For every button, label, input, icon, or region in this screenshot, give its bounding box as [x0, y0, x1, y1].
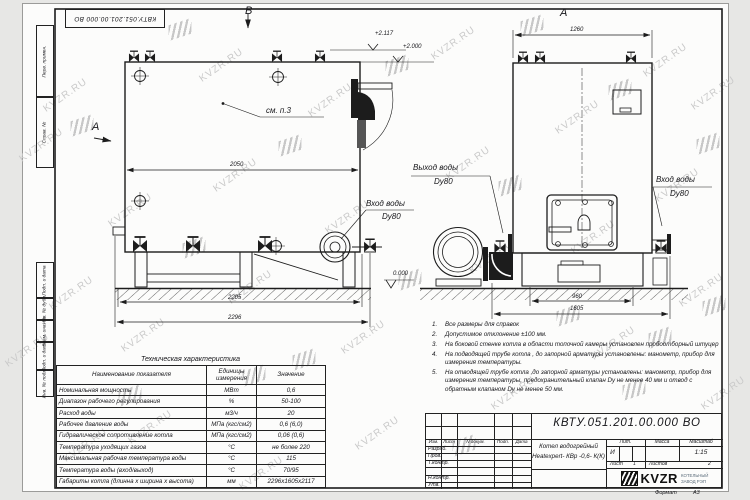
- table-row: Габариты котла (длинна х ширина х высота…: [57, 476, 326, 488]
- elevation-2117: +2.117: [375, 31, 393, 37]
- table-row: Максимальная рабочая температура воды°С1…: [57, 453, 326, 464]
- note-item: 3.На боковой стенке котла в области топо…: [432, 341, 724, 349]
- table-row: Расход водым3/ч20: [57, 407, 326, 418]
- left-inlet-label: Вход воды: [366, 200, 405, 208]
- tech-col-name: Наименование показателя: [57, 366, 207, 385]
- elevation-0000: 0.000: [393, 271, 408, 277]
- side-cell-perv-primen: Перв. примен.: [36, 25, 54, 97]
- table-row: Гидравлическое сопротивление котлаМПа (к…: [57, 430, 326, 441]
- row-tkontr: Т.контр.: [428, 461, 449, 466]
- section-a-label: А: [92, 122, 99, 133]
- row-razrab: Разраб.: [428, 447, 447, 452]
- format-value: А3: [693, 491, 700, 497]
- col-podp: Подп.: [494, 440, 512, 445]
- note-item: 1.Все размеры для справок: [432, 321, 724, 329]
- right-outlet-label: Выход воды: [413, 164, 458, 172]
- table-row: Диапазон рабочего регулирования%50-100: [57, 396, 326, 407]
- ground-hatching: [115, 289, 688, 301]
- note-item: 2.Допустимое отклонение ±100 мм.: [432, 331, 724, 339]
- kvzr-logo-icon: [621, 471, 638, 486]
- kvzr-logo-text: KVZR: [641, 471, 678, 486]
- side-cell-vzam-inv: Взам. инв. №: [36, 320, 54, 342]
- top-stamp-number: КВТУ.051.201.00.000 ВО: [74, 15, 156, 22]
- table-row: Температура уходящих газов°Сне более 220: [57, 442, 326, 453]
- dim-2296: 2296: [228, 315, 241, 321]
- side-cell-podp-data-1: Подп. и дата: [36, 262, 54, 298]
- product-name-1: Котел водогрейный: [531, 444, 606, 450]
- tech-col-units: Единицы измерения: [207, 366, 257, 385]
- row-prov: Пров.: [428, 454, 442, 459]
- product-name-2: Heatexpert- КВр -0,6- К(К): [526, 454, 611, 460]
- sheets-label: Листов: [649, 462, 667, 467]
- table-row: Номинальная мощностьМВт0,6: [57, 385, 326, 396]
- dim-2205: 2205: [228, 295, 241, 301]
- view-b-label: В: [245, 6, 252, 17]
- left-inlet-dn: Dy80: [382, 213, 401, 221]
- sheets-value: 2: [708, 462, 711, 467]
- doc-number: КВТУ.051.201.00.000 ВО: [531, 418, 723, 430]
- drawing-page: KVZR.RUKVZR.RUKVZR.RUKVZR.RUKVZR.RUKVZR.…: [0, 0, 750, 500]
- notes-list: 1.Все размеры для справок 2.Допустимое о…: [432, 321, 724, 395]
- title-block: КВТУ.051.201.00.000 ВО Изм. Лист N докум…: [425, 413, 722, 488]
- elevation-2000: +2.000: [403, 44, 422, 50]
- row-utv: Утв.: [428, 483, 440, 488]
- right-inlet-label: Вход воды: [656, 176, 695, 184]
- row-nkontr: Н.контр.: [428, 476, 450, 481]
- side-cell-inv-podl: Инв. № подл.: [36, 370, 54, 397]
- note-item: 4.На подводящей трубе котла , до запорно…: [432, 351, 724, 368]
- left-view-side: [94, 14, 434, 327]
- table-row: Рабочее давление водыМПа (кгс/см2)0,6 (6…: [57, 419, 326, 430]
- scale-value: 1:15: [679, 450, 723, 457]
- note-item: 5.На отводящей трубе котла ,до запорной …: [432, 369, 724, 394]
- format-label: Формат: [655, 491, 677, 497]
- dim-1605: 1605: [570, 306, 583, 312]
- side-cell-podp-data-2: Подп. и дата: [36, 342, 54, 370]
- col-ndokum: N докум.: [457, 440, 494, 445]
- tech-col-value: Значение: [257, 366, 326, 385]
- dim-960: 960: [572, 294, 582, 300]
- lit-header: Лит.: [606, 440, 645, 445]
- side-cell-sprav-no: Справ. №: [36, 97, 54, 168]
- company-logo-row: KVZR КОТЕЛЬНЫЙ ЗАВОД РЭП: [606, 468, 723, 489]
- sheet-value: 1: [633, 462, 636, 467]
- tech-table-title: Техническая характеристика: [56, 356, 325, 363]
- col-izm: Изм.: [426, 440, 441, 445]
- dim-1260: 1260: [570, 27, 583, 33]
- right-outlet-dn: Dy80: [434, 178, 453, 186]
- dim-2050: 2050: [230, 162, 243, 168]
- mass-header: Масса: [645, 440, 679, 445]
- col-list: Лист: [441, 440, 457, 445]
- col-data: Дата: [512, 440, 531, 445]
- lit-value: И: [606, 450, 619, 457]
- see-note-label: см. п.3: [266, 107, 291, 115]
- sheet-label: Лист: [610, 462, 623, 467]
- scale-header: Масштаб: [679, 440, 723, 445]
- view-a-label: А: [560, 8, 567, 19]
- right-inlet-dn: Dy80: [670, 190, 689, 198]
- tech-table: Наименование показателя Единицы измерени…: [56, 365, 326, 488]
- company-name: КОТЕЛЬНЫЙ ЗАВОД РЭП: [681, 473, 709, 484]
- top-stamp: КВТУ.051.201.00.000 ВО: [65, 9, 165, 28]
- table-row: Температура воды (вход/выход)°С70/95: [57, 465, 326, 476]
